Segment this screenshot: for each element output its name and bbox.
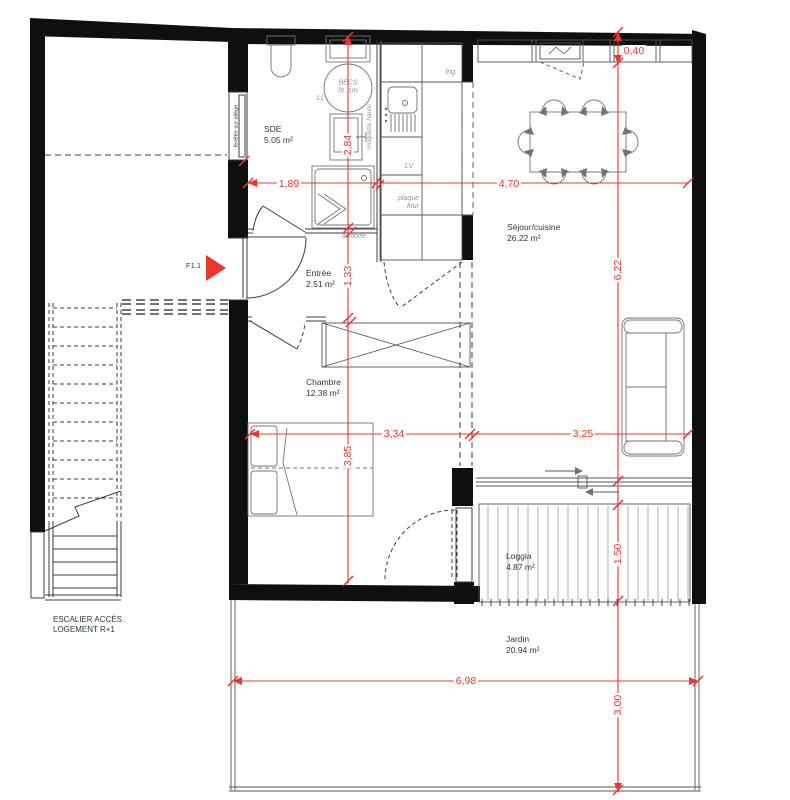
dim-entree-height: 1,33	[342, 264, 354, 288]
dim-jardin-depth: 3,00	[612, 693, 624, 717]
room-label-loggia: Loggia 4.87 m²	[506, 551, 535, 573]
door-ref-label: F1.1	[186, 261, 201, 271]
dim-jardin-width: 6,98	[454, 675, 478, 687]
room-name: Entrée	[306, 268, 335, 279]
room-area: 4.87 m²	[506, 562, 535, 573]
water-heater-label: BECS ht. 1m	[338, 80, 357, 97]
room-name: SDE	[264, 124, 293, 135]
wall-cabinets	[478, 40, 692, 79]
bed	[248, 423, 373, 516]
room-area: 2.51 m²	[306, 279, 335, 290]
cooktop-oven-label: plaque four	[390, 195, 419, 212]
partition-label: moquette haute	[366, 104, 374, 149]
chambre-door	[250, 321, 305, 349]
room-area: 5.05 m²	[264, 135, 293, 146]
chairs	[518, 100, 638, 184]
fridge-label: frig.	[432, 69, 457, 77]
floor-plan: SDE 5.05 m² Entrée 2.51 m² Chambre 12.38…	[0, 0, 790, 800]
washer-label: LL	[317, 95, 325, 103]
panel-symbol	[549, 47, 571, 54]
sliding-door	[476, 467, 692, 496]
room-area: 12.38 m²	[306, 388, 341, 399]
room-name: Séjour/cuisine	[507, 222, 560, 233]
dim-sde-width: 1,89	[277, 178, 301, 190]
dim-cabinet-depth: 0,40	[622, 45, 646, 57]
room-name: Loggia	[506, 551, 535, 562]
room-name: Chambre	[306, 377, 341, 388]
dining-table	[530, 112, 626, 172]
plan-linework	[0, 0, 790, 800]
sofa	[622, 318, 684, 456]
dishwasher-label: LV	[405, 163, 413, 171]
dim-sejour-height: 6,22	[612, 258, 624, 282]
garden-border	[229, 599, 701, 791]
wardrobe-label: armoire	[342, 233, 366, 241]
room-label-sejour: Séjour/cuisine 26.22 m²	[507, 222, 560, 244]
fridge-tall-unit	[462, 82, 473, 215]
dim-sejour-width: 4,70	[497, 178, 521, 190]
entrance-door	[243, 237, 306, 298]
dim-sejour-lower-width: 3,25	[571, 428, 595, 440]
sejour-door-dashed	[384, 262, 462, 308]
stair-label: ESCALIER ACCÈS LOGEMENT R+1	[53, 615, 122, 636]
kitchen-counter	[380, 43, 473, 260]
room-label-sde: SDE 5.05 m²	[264, 124, 293, 146]
dim-chambre-height: 3,85	[342, 444, 354, 468]
room-name: Jardin	[506, 634, 540, 645]
room-label-jardin: Jardin 20.94 m²	[506, 634, 540, 656]
loggia-door-dashed	[385, 510, 457, 580]
sde-door	[253, 206, 305, 232]
dim-chambre-width: 3,34	[382, 428, 406, 440]
dim-sde-height: 2,84	[342, 133, 354, 157]
upper-floor-dashed-lines	[45, 155, 228, 314]
stairs	[45, 303, 121, 600]
door-ref-arrow	[206, 255, 226, 281]
room-area: 26.22 m²	[507, 233, 560, 244]
shower	[312, 166, 374, 228]
dim-loggia-depth: 1,50	[612, 542, 624, 566]
window-label: fenêtre sur allège	[233, 105, 240, 148]
room-label-chambre: Chambre 12.38 m²	[306, 377, 341, 399]
room-label-entree: Entrée 2.51 m²	[306, 268, 335, 290]
wardrobe	[322, 323, 470, 367]
room-area: 20.94 m²	[506, 645, 540, 656]
